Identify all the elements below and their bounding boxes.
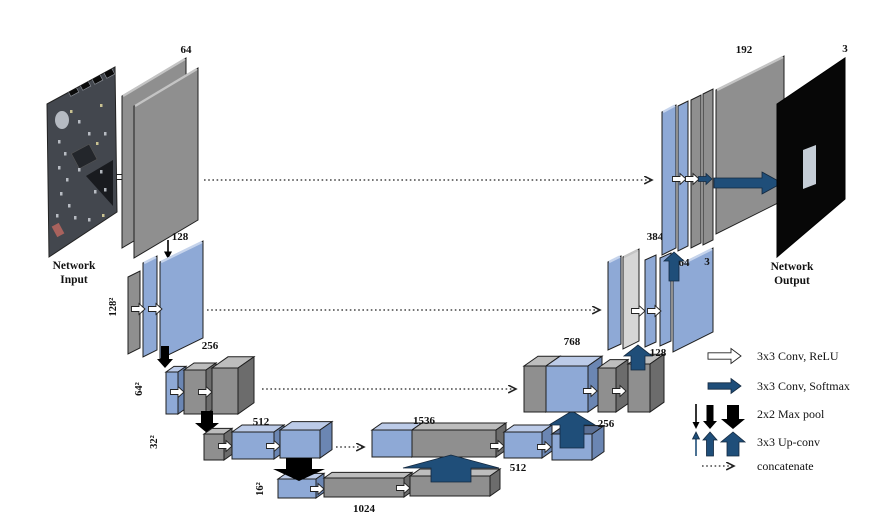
dec-block-192 [662,56,784,255]
label-enc-128: 128 [172,231,189,243]
label-dec-3: 3 [704,256,710,268]
box-side-face [650,354,664,412]
box-front-face [546,366,588,412]
label-dec-1536: 1536 [413,415,436,427]
box-front-face [628,364,650,412]
unet-architecture-diagram: Network Input 64 128 128² 256 64² [0,0,888,529]
up-conv-arrow-icon [693,432,746,456]
label-dec-128: 128 [650,347,667,359]
legend: 3x3 Conv, ReLU 3x3 Conv, Softmax 2x2 Max… [693,349,850,474]
max-pool-arrow-icon [693,404,746,429]
label-dec-512: 512 [510,462,527,474]
legend-label-max-pool: 2x2 Max pool [757,407,825,421]
legend-label-conv-softmax: 3x3 Conv, Softmax [757,379,850,393]
dec-block-384 [608,248,713,352]
label-enc-64: 64 [181,44,193,56]
box-front-face [280,430,320,458]
label-enc-512: 512 [253,416,270,428]
box-top-face [324,472,412,478]
box-front-face [212,368,238,414]
output-caption-line1: Network [771,261,814,273]
legend-label-conv-relu: 3x3 Conv, ReLU [757,349,839,363]
box-front-face [524,366,546,412]
input-caption-line1: Network [53,260,96,272]
box-front-face [504,432,542,458]
conv-relu-arrow-icon [708,349,741,364]
output-caption-line2: Output [774,275,810,287]
enc-block-128 [128,241,203,359]
label-dec-384: 384 [647,231,664,243]
input-caption-line2: Input [60,274,88,286]
box-front-face [372,430,412,457]
label-output-3: 3 [842,43,848,55]
output-segmentation-region [803,145,816,189]
label-dec-768: 768 [564,336,581,348]
label-dec-256: 256 [598,418,615,430]
label-res-16: 16² [255,482,266,496]
label-bottleneck-1024: 1024 [353,503,376,515]
legend-label-concatenate: concatenate [757,459,814,473]
label-dec-192: 192 [736,44,753,56]
conv-softmax-arrow-icon [708,379,741,394]
box-front-face [324,478,404,497]
box-front-face [412,430,496,457]
legend-label-up-conv: 3x3 Up-conv [757,435,820,449]
label-enc-256: 256 [202,340,219,352]
box-side-face [616,360,628,412]
label-res-128: 128² [108,298,119,317]
label-res-64: 64² [134,382,145,396]
network-input-image: Network Input [47,66,117,286]
enc-block-64 [122,58,198,258]
enc-block-256 [166,357,254,414]
label-res-32: 32² [149,435,160,449]
